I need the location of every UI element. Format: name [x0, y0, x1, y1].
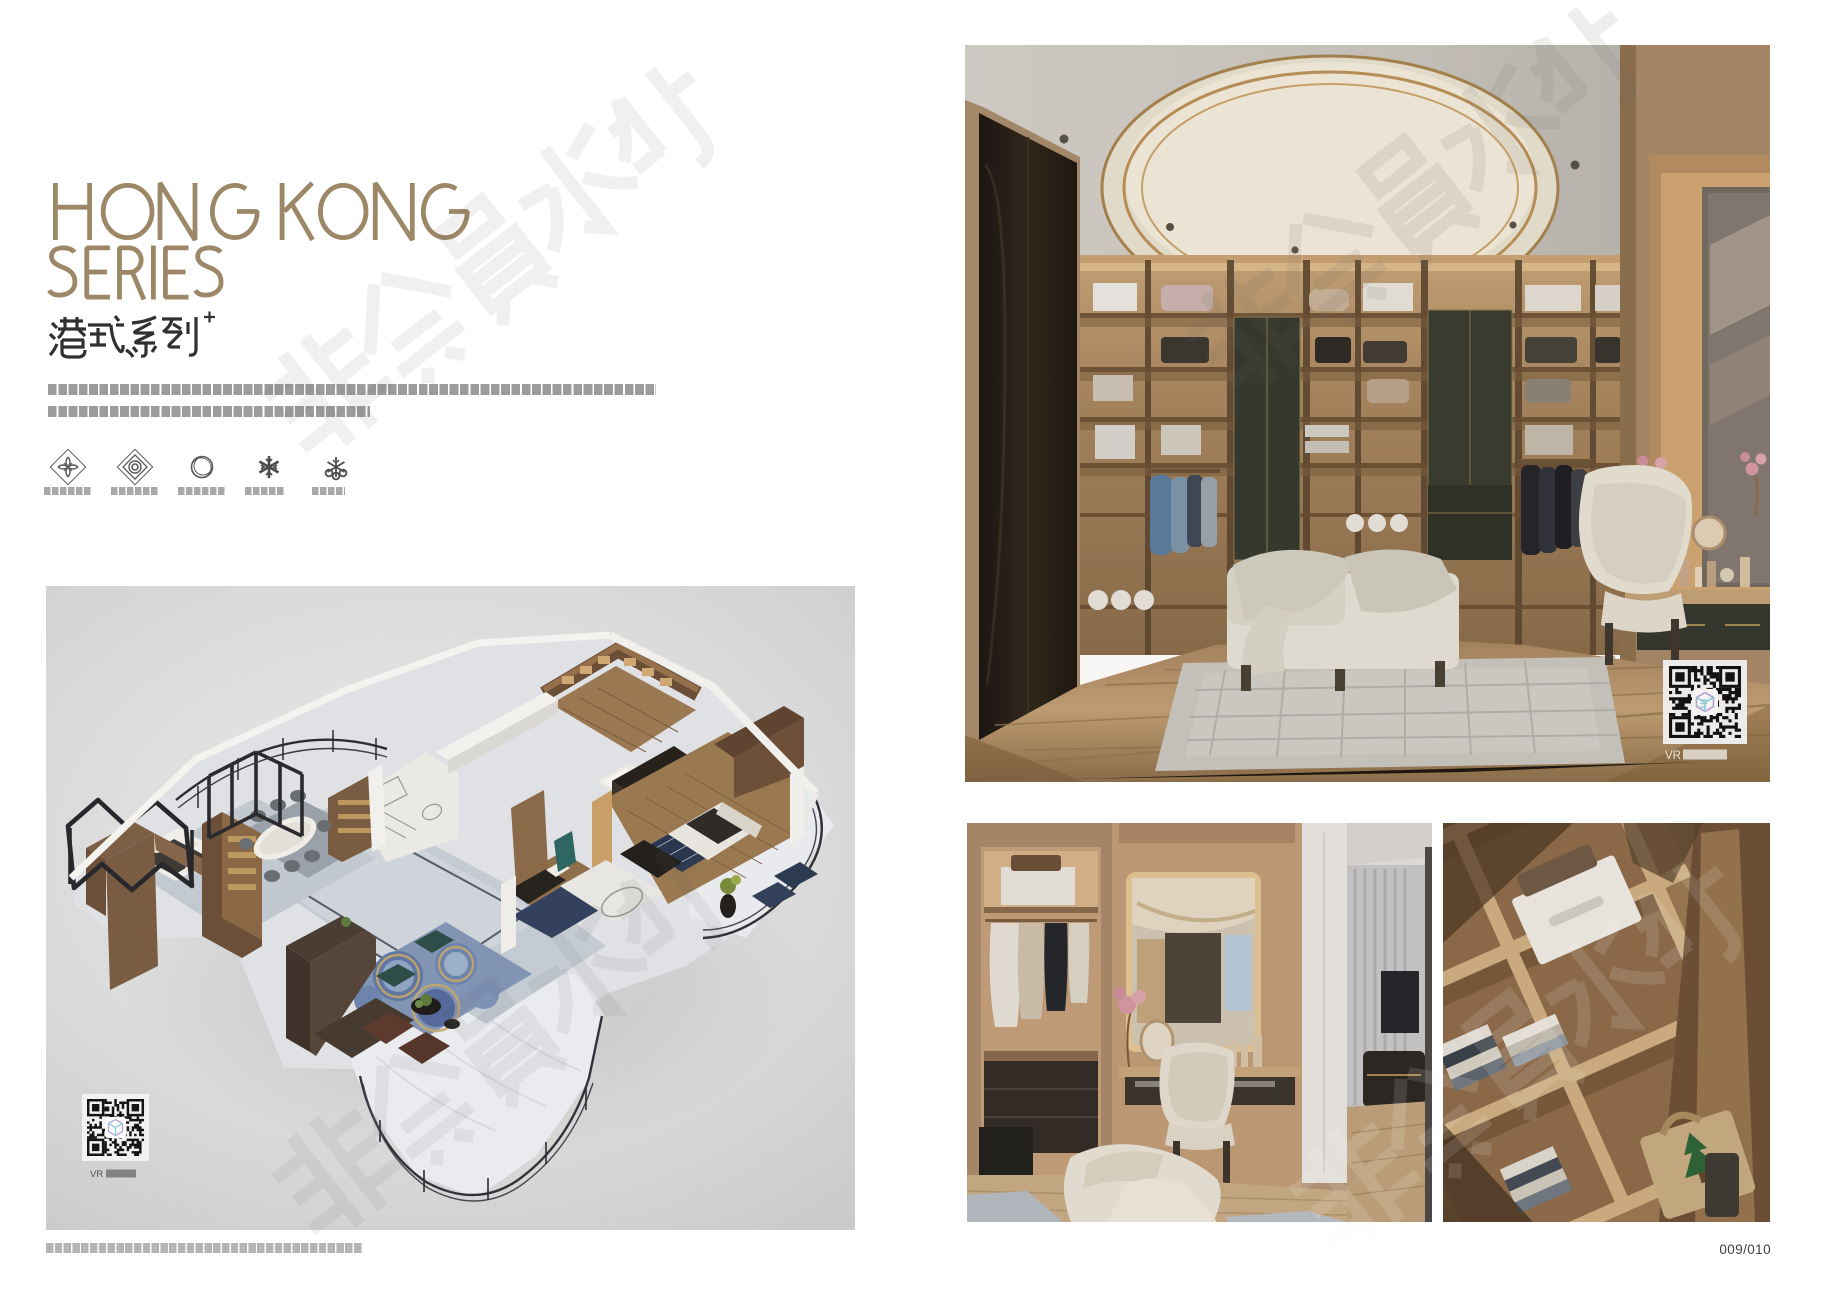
- svg-text:VR: VR: [90, 1169, 103, 1180]
